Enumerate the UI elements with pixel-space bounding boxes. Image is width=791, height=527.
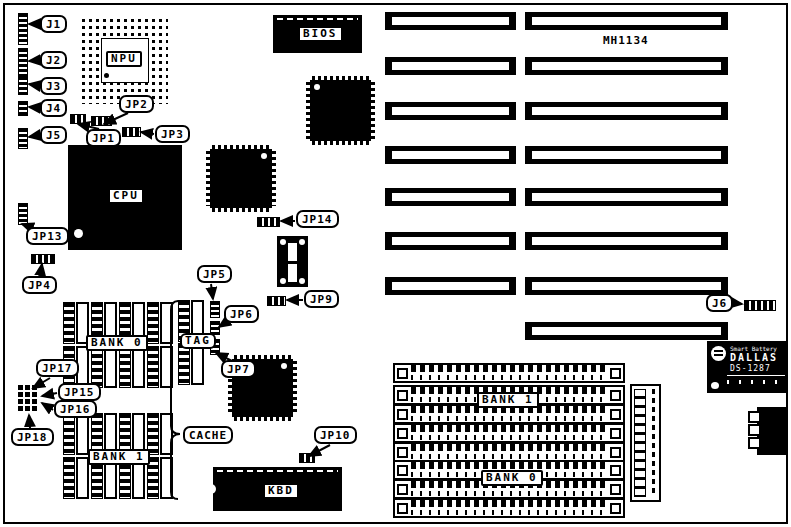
- jumper-jp4: [31, 254, 55, 264]
- isa-slot-8bit-6: [385, 232, 516, 250]
- npu-pin1-dot: [104, 73, 109, 78]
- isa-slot-8bit-7: [385, 277, 516, 295]
- callout-jp4: JP4: [22, 276, 57, 294]
- connector-j5: [18, 128, 28, 149]
- jumper-jp5: [210, 301, 220, 318]
- isa-slot-16bit-2: [525, 57, 728, 75]
- jumper-jp2: [91, 116, 112, 126]
- isa-slot-16bit-1: [525, 12, 728, 30]
- dallas-rtc-chip: Smart Battery DALLAS DS-1287: [707, 341, 788, 393]
- jumper-jp3: [122, 127, 141, 137]
- kbd-label: KBD: [263, 483, 299, 499]
- connector-j2: [18, 48, 28, 76]
- isa-slot-8bit-5: [385, 188, 516, 206]
- jumper-j6: [744, 300, 776, 311]
- callout-jp18: JP18: [11, 428, 54, 446]
- callout-jp1: JP1: [86, 129, 121, 147]
- jumper-jp14: [257, 217, 280, 227]
- dip-bank0-label: BANK 0: [86, 335, 148, 351]
- callout-jp2: JP2: [119, 95, 154, 113]
- callout-jp6: JP6: [224, 305, 259, 323]
- connector-j3: [18, 76, 28, 95]
- tag-label: TAG: [180, 333, 216, 349]
- rtc-part: DS-1287: [730, 364, 771, 373]
- isa-slot-16bit-8: [525, 322, 728, 340]
- kbcon-pin-3: [748, 437, 761, 449]
- isa-slot-8bit-2: [385, 57, 516, 75]
- jumper-jp9: [267, 296, 286, 306]
- board-model-text: MH1134: [603, 34, 649, 47]
- qfp-chipset-1: [306, 76, 375, 145]
- isa-slot-8bit-4: [385, 146, 516, 164]
- oscillator: [277, 236, 308, 287]
- callout-jp7: JP7: [221, 360, 256, 378]
- isa-slot-16bit-7: [525, 277, 728, 295]
- power-connector: [630, 384, 661, 502]
- isa-slot-8bit-1: [385, 12, 516, 30]
- connector-j1: [18, 13, 28, 45]
- simm-socket-5: [393, 442, 625, 462]
- bios-notch-stripe: [277, 18, 358, 20]
- jumper-block-jp15-jp18: [17, 384, 38, 412]
- rtc-brand: DALLAS: [730, 352, 778, 363]
- callout-jp16: JP16: [54, 400, 97, 418]
- callout-j2: J2: [40, 51, 67, 69]
- rtc-ticks: [727, 380, 785, 384]
- tag-chip-row2: [178, 343, 204, 385]
- callout-jp14: JP14: [296, 210, 339, 228]
- cache-label: CACHE: [183, 426, 233, 444]
- kbd-notch-stripe: [217, 470, 338, 472]
- npu-label: NPU: [106, 51, 142, 67]
- callout-jp5: JP5: [197, 265, 232, 283]
- dip-bank1-label: BANK 1: [88, 449, 150, 465]
- kbcon-pin-1: [748, 411, 761, 423]
- callout-jp10: JP10: [314, 426, 357, 444]
- qfp1-pin1-dot: [314, 84, 320, 90]
- isa-slot-16bit-3: [525, 102, 728, 120]
- cpu-pin1-dot: [74, 229, 83, 238]
- callout-jp17: JP17: [36, 359, 79, 377]
- simm-bank1-label: BANK 1: [477, 392, 539, 408]
- simm-socket-8: [393, 498, 625, 518]
- callout-jp9: JP9: [304, 290, 339, 308]
- isa-slot-16bit-6: [525, 232, 728, 250]
- simm-socket-4: [393, 423, 625, 443]
- motherboard-diagram: J1 J2 J3 J4 J5 JP13 JP4 JP1 JP2 JP3 JP14…: [0, 0, 791, 527]
- kbcon-pin-2: [748, 424, 761, 436]
- bios-label: BIOS: [298, 26, 343, 42]
- cpu-label: CPU: [108, 188, 144, 204]
- qfp-chipset-2: [206, 145, 276, 212]
- callout-j3: J3: [40, 77, 67, 95]
- qfp2-pin1-dot: [261, 153, 267, 159]
- callout-jp15: JP15: [58, 383, 101, 401]
- jumper-jp10: [299, 453, 315, 463]
- simm-bank0-label: BANK 0: [481, 470, 543, 486]
- kbd-notch: [211, 484, 216, 494]
- isa-slot-16bit-5: [525, 188, 728, 206]
- rtc-line1: Smart Battery: [730, 345, 777, 352]
- isa-slot-8bit-3: [385, 102, 516, 120]
- connector-jp13: [18, 203, 28, 225]
- qfp3-pin1-dot: [281, 363, 287, 369]
- connector-j4: [18, 101, 28, 116]
- callout-jp3: JP3: [155, 125, 190, 143]
- callout-jp13: JP13: [26, 227, 69, 245]
- cache-bank0-row2: [63, 346, 173, 388]
- callout-j1: J1: [40, 15, 67, 33]
- simm-socket-1: [393, 363, 625, 383]
- rtc-rule: [727, 375, 785, 376]
- keyboard-connector: [757, 407, 788, 455]
- dallas-logo: [711, 346, 726, 361]
- isa-slot-16bit-4: [525, 146, 728, 164]
- callout-j6: J6: [706, 294, 733, 312]
- jumper-jp1: [70, 114, 86, 124]
- rtc-dot: [711, 382, 719, 389]
- callout-j5: J5: [40, 126, 67, 144]
- callout-j4: J4: [40, 99, 67, 117]
